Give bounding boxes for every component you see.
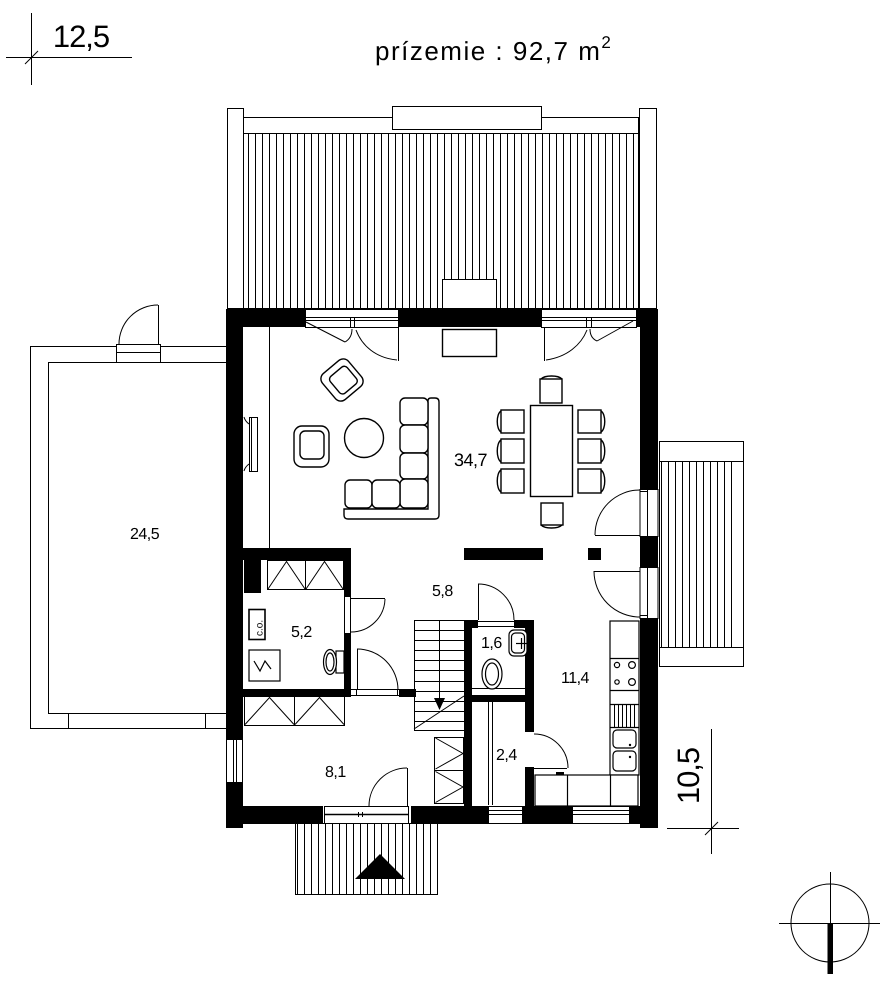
svg-text:34,7: 34,7 [454, 450, 488, 470]
svg-text:2,4: 2,4 [496, 747, 517, 764]
svg-text:24,5: 24,5 [130, 526, 160, 543]
svg-text:5,8: 5,8 [432, 583, 453, 600]
svg-text:8,1: 8,1 [325, 764, 346, 781]
svg-text:1,6: 1,6 [481, 635, 502, 652]
svg-text:c.o.: c.o. [255, 620, 266, 636]
svg-text:12,5: 12,5 [53, 19, 109, 54]
svg-text:10,5: 10,5 [671, 748, 706, 804]
svg-text:11,4: 11,4 [561, 670, 590, 687]
svg-text:5,2: 5,2 [291, 624, 312, 641]
svg-text:prízemie : 92,7 m2: prízemie : 92,7 m2 [375, 33, 612, 66]
